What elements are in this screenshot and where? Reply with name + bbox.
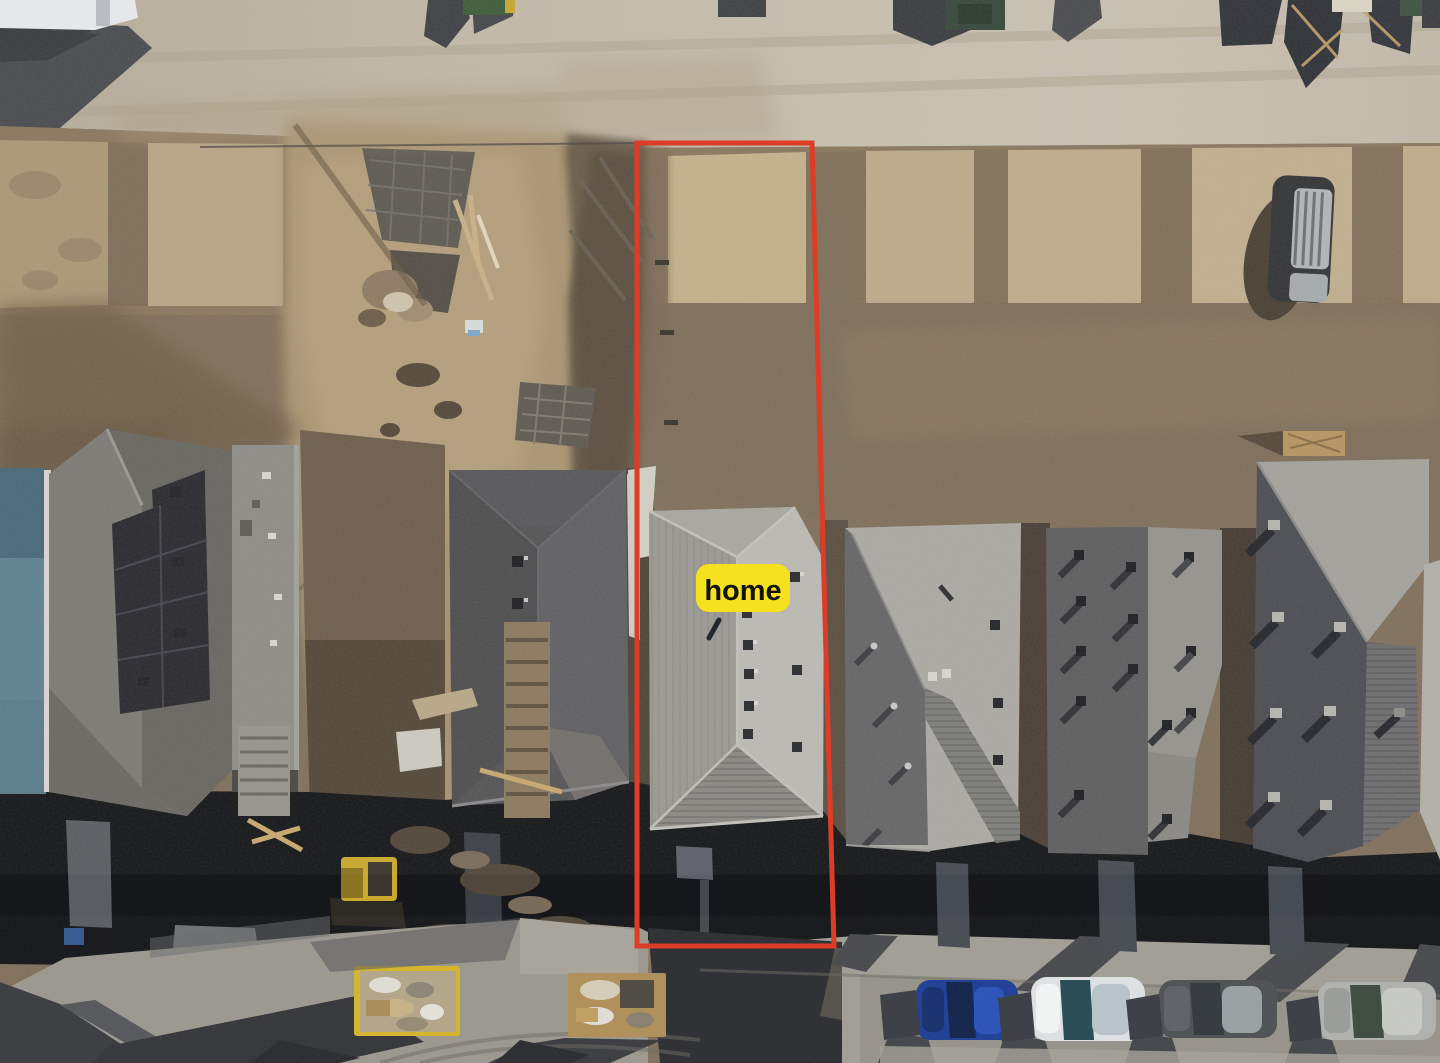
svg-text:home: home [704,575,781,607]
